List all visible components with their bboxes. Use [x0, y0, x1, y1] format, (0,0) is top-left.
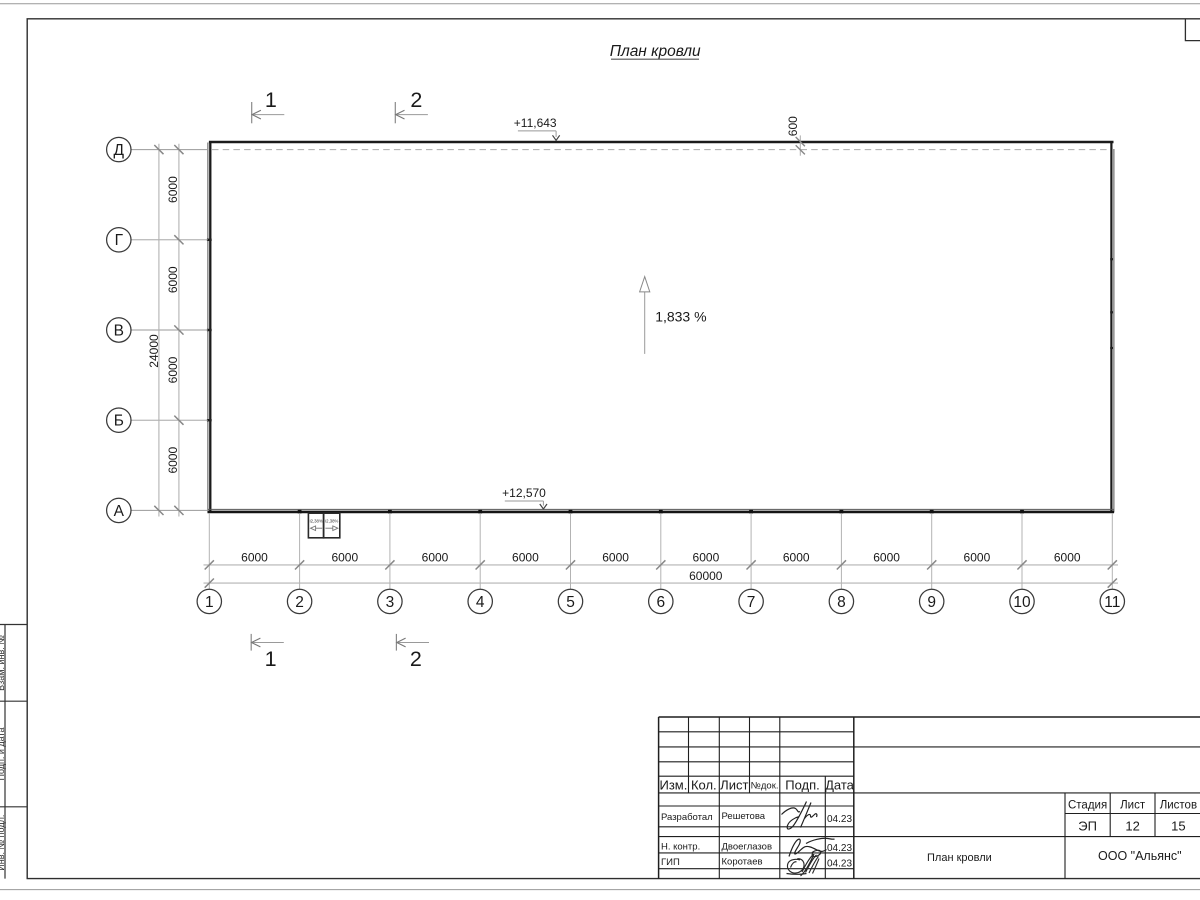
svg-text:Кол.: Кол.: [691, 778, 717, 793]
svg-text:24000: 24000: [147, 334, 161, 368]
svg-text:Двоеглазов: Двоеглазов: [722, 841, 773, 852]
svg-text:8: 8: [837, 594, 846, 611]
svg-text:6000: 6000: [873, 550, 900, 564]
svg-text:План кровли: План кровли: [610, 43, 701, 60]
svg-text:Лист: Лист: [1120, 799, 1146, 811]
svg-text:План кровли: План кровли: [927, 852, 992, 864]
svg-text:Изм.: Изм.: [659, 778, 687, 793]
svg-text:1: 1: [205, 594, 214, 611]
svg-text:6000: 6000: [166, 356, 180, 383]
svg-text:Инв. № подл.: Инв. № подл.: [0, 815, 6, 871]
svg-text:Б: Б: [114, 413, 124, 430]
svg-text:Взам. инв. №: Взам. инв. №: [0, 635, 6, 691]
svg-text:15: 15: [1171, 818, 1185, 833]
svg-text:ГИП: ГИП: [661, 857, 680, 868]
svg-text:i2,38%: i2,38%: [310, 518, 323, 523]
svg-text:600: 600: [786, 116, 800, 136]
svg-text:1: 1: [265, 88, 277, 112]
svg-text:12: 12: [1125, 818, 1139, 833]
svg-text:6000: 6000: [783, 550, 810, 564]
svg-text:7: 7: [747, 594, 756, 611]
svg-text:3: 3: [386, 594, 395, 611]
svg-text:Коротаев: Коротаев: [722, 856, 763, 867]
svg-text:1,833 %: 1,833 %: [655, 309, 706, 325]
svg-text:60000: 60000: [689, 569, 723, 583]
svg-text:Подп. и дата: Подп. и дата: [0, 727, 6, 780]
svg-text:А: А: [114, 503, 125, 520]
svg-text:6000: 6000: [166, 447, 180, 474]
svg-text:1: 1: [265, 647, 277, 671]
svg-text:Г: Г: [115, 232, 124, 249]
svg-text:9: 9: [927, 594, 936, 611]
svg-text:04.23: 04.23: [827, 859, 852, 870]
svg-text:Листов: Листов: [1160, 799, 1197, 811]
svg-text:6000: 6000: [422, 550, 449, 564]
svg-text:Разработал: Разработал: [661, 812, 713, 823]
svg-text:4: 4: [476, 594, 485, 611]
svg-text:Д: Д: [114, 142, 125, 159]
svg-text:2: 2: [295, 594, 304, 611]
svg-text:Дата: Дата: [825, 778, 855, 793]
svg-text:6000: 6000: [693, 550, 720, 564]
svg-text:Н. контр.: Н. контр.: [661, 841, 700, 852]
svg-text:В: В: [114, 322, 124, 339]
svg-text:+12,570: +12,570: [502, 486, 546, 500]
svg-text:2: 2: [410, 647, 422, 671]
svg-text:10: 10: [1013, 594, 1031, 611]
svg-text:6000: 6000: [964, 550, 991, 564]
svg-text:6000: 6000: [602, 550, 629, 564]
svg-text:6000: 6000: [512, 550, 539, 564]
svg-text:6: 6: [656, 594, 665, 611]
svg-text:Стадия: Стадия: [1068, 799, 1107, 811]
svg-text:6000: 6000: [331, 550, 358, 564]
svg-text:6000: 6000: [1054, 550, 1081, 564]
svg-text:6000: 6000: [241, 550, 268, 564]
svg-text:6000: 6000: [166, 176, 180, 203]
svg-text:i2,38%: i2,38%: [325, 518, 338, 523]
svg-text:6000: 6000: [166, 266, 180, 293]
svg-text:11: 11: [1104, 594, 1120, 611]
svg-text:2: 2: [410, 88, 422, 112]
svg-text:04.23: 04.23: [827, 843, 852, 854]
svg-text:Лист: Лист: [720, 778, 748, 793]
svg-text:5: 5: [566, 594, 575, 611]
svg-text:+11,643: +11,643: [514, 116, 557, 130]
svg-text:ЭП: ЭП: [1078, 818, 1097, 833]
svg-text:№док.: №док.: [751, 781, 779, 792]
svg-text:04.23: 04.23: [827, 814, 852, 825]
svg-text:Подп.: Подп.: [785, 778, 820, 793]
svg-text:ООО "Альянс": ООО "Альянс": [1098, 849, 1182, 863]
svg-text:Решетова: Решетова: [722, 811, 766, 822]
